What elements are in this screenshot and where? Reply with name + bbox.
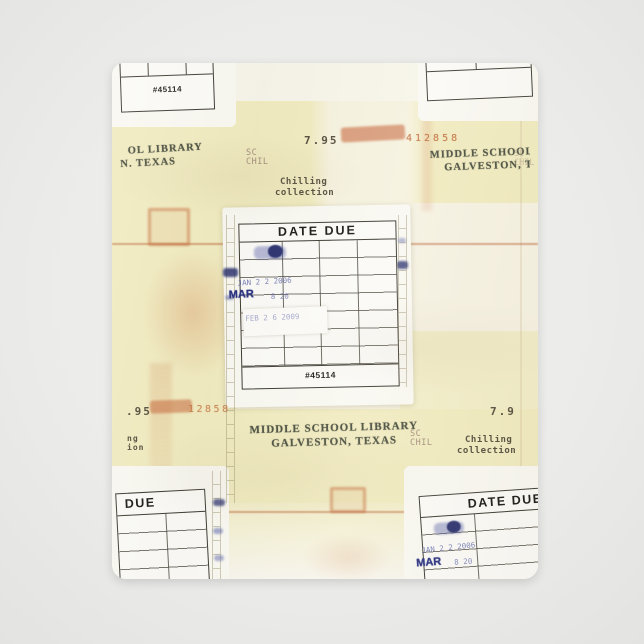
date-stamp: JAN 2 2 2006 bbox=[421, 540, 476, 555]
stamp-fragment bbox=[214, 555, 224, 561]
stamp-fragment bbox=[398, 238, 406, 243]
date-stamp: JAN 2 2 2006 bbox=[237, 276, 292, 288]
date-due-card-center: DATE DUE JAN 2 2 2006 MAR 8 20 FEB 2 6 2… bbox=[238, 220, 399, 389]
date-due-card-top-right bbox=[425, 63, 533, 101]
card-number: #45114 bbox=[121, 74, 214, 107]
tile-cream-column-upper bbox=[310, 101, 428, 217]
fleece-blanket: #45114 DATE DUE JAN 2 2 2006 MAR 8 20 FE… bbox=[112, 63, 538, 579]
tile-yellow-right-low bbox=[400, 331, 538, 411]
call-number-line: CHIL bbox=[514, 159, 534, 168]
collection-fragment-bottom-left: ng ion bbox=[127, 434, 144, 452]
collection-fragment-line: ion bbox=[127, 443, 144, 452]
library-stamp-bottom-center: MIDDLE SCHOOL LIBRARY GALVESTON, TEXAS bbox=[246, 419, 423, 452]
date-stamp-month: MAR bbox=[229, 288, 255, 301]
date-due-card-bottom-right: DATE DUE JAN 2 2 2006 MAR 8 20 bbox=[419, 484, 538, 579]
card-number: #45114 bbox=[242, 363, 398, 386]
call-number-line: CHIL bbox=[246, 158, 268, 167]
pocket-edge-ruler-bottom-left bbox=[212, 471, 221, 579]
stain-square-bottom bbox=[330, 487, 366, 513]
tile-cream-mid-right bbox=[400, 203, 538, 335]
collection-line: collection bbox=[275, 188, 334, 199]
call-number-bottom: SC CHIL bbox=[410, 430, 432, 448]
stain-square-left bbox=[148, 208, 190, 246]
accession-fragment: 12858 bbox=[188, 404, 231, 415]
collection-line: collection bbox=[457, 446, 516, 457]
product-photo: #45114 DATE DUE JAN 2 2 2006 MAR 8 20 FE… bbox=[0, 0, 644, 644]
collection-line: Chilling bbox=[275, 177, 334, 188]
price-fragment-bottom-left: .95 bbox=[126, 405, 152, 418]
collection-fragment-line: ng bbox=[127, 434, 144, 443]
stain-blob-bottom-center bbox=[302, 533, 392, 579]
date-grid bbox=[117, 512, 209, 579]
price-top: 7.95 bbox=[304, 134, 339, 147]
stamp-fragment bbox=[223, 268, 238, 277]
library-stamp-fragment-left: OL LIBRARY N. TEXAS bbox=[115, 141, 204, 172]
call-number-top-right: SC CHIL bbox=[514, 150, 534, 168]
date-stamp-day: 8 20 bbox=[271, 292, 289, 301]
date-due-card-top-left: #45114 bbox=[119, 63, 215, 113]
accession-number: 412858 bbox=[406, 133, 460, 144]
date-grid: JAN 2 2 2006 MAR 8 20 bbox=[421, 506, 538, 579]
card-grid-row bbox=[427, 68, 532, 99]
call-number-top: SC CHIL bbox=[246, 149, 268, 167]
accession-stamp-smudge bbox=[150, 399, 192, 413]
date-stamp-month: MAR bbox=[416, 556, 442, 570]
stamp-fragment bbox=[213, 528, 223, 534]
collection-label-top: Chilling collection bbox=[275, 177, 334, 198]
date-stamp-day: 8 20 bbox=[454, 557, 473, 567]
date-due-card-bottom-left: DUE bbox=[115, 489, 211, 579]
price-fragment-bottom-right: 7.9 bbox=[490, 405, 516, 418]
date-grid: JAN 2 2 2006 MAR 8 20 FEB 2 6 2009 bbox=[240, 239, 399, 366]
collection-block: Chilling collection bbox=[457, 435, 516, 456]
collection-line: Chilling bbox=[457, 435, 516, 446]
stamp-fragment bbox=[397, 261, 408, 269]
collection-label-bottom-right: Chilling collection bbox=[457, 435, 538, 459]
pocket-edge-ruler-left bbox=[226, 215, 235, 503]
stamp-fragment bbox=[213, 499, 225, 506]
call-number-line: CHIL bbox=[410, 439, 432, 448]
